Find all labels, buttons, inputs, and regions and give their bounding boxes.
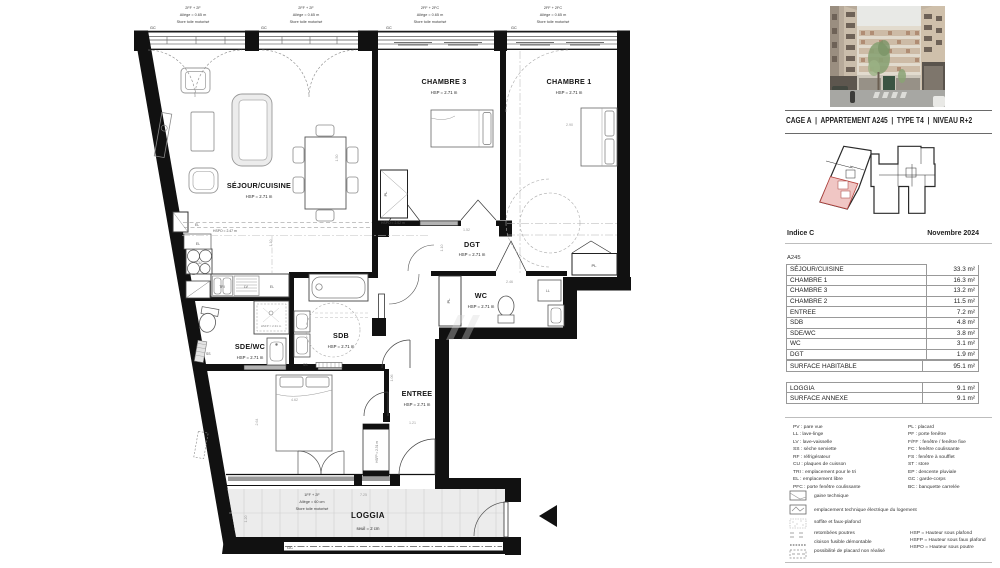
svg-text:2.46: 2.46 (506, 280, 513, 284)
svg-text:HSPO = 2.02 m: HSPO = 2.02 m (381, 221, 405, 225)
svg-text:HSP = 2.71 m: HSP = 2.71 m (556, 90, 583, 95)
svg-text:2.90: 2.90 (566, 123, 573, 127)
svg-text:HSP = 2.71 m: HSP = 2.71 m (404, 402, 431, 407)
svg-text:1FF + 2F: 1FF + 2F (304, 493, 320, 497)
svg-text:HSFP = 2.31 m: HSFP = 2.31 m (261, 324, 282, 328)
svg-text:PL: PL (446, 298, 451, 304)
svg-text:Allège = 0.65 m: Allège = 0.65 m (417, 13, 444, 17)
svg-text:Store toile motorisé: Store toile motorisé (290, 20, 323, 24)
svg-text:4.62: 4.62 (291, 398, 298, 402)
svg-text:Store toile motorisé: Store toile motorisé (537, 20, 570, 24)
svg-text:1.52: 1.52 (463, 228, 470, 232)
svg-text:GC: GC (150, 26, 156, 30)
svg-text:LOGGIA: LOGGIA (351, 511, 385, 520)
svg-text:Allège = 0.65 m: Allège = 0.65 m (180, 13, 207, 17)
svg-text:2FF + 2FC: 2FF + 2FC (544, 6, 563, 10)
svg-text:Store toile motorisé: Store toile motorisé (296, 507, 329, 511)
svg-text:1.10: 1.10 (440, 245, 444, 252)
svg-text:Allège = 0.65 m: Allège = 0.65 m (293, 13, 320, 17)
svg-text:DGT: DGT (464, 240, 480, 249)
svg-text:GC: GC (287, 545, 293, 550)
svg-text:1.50: 1.50 (335, 155, 339, 162)
svg-text:SS: SS (303, 363, 308, 367)
svg-text:CHAMBRE 1: CHAMBRE 1 (547, 77, 592, 86)
svg-text:2FF + 2F: 2FF + 2F (298, 6, 314, 10)
svg-text:SS: SS (206, 352, 211, 356)
svg-text:HSP = 2.71 m: HSP = 2.71 m (431, 90, 458, 95)
svg-text:seuil = 2 cm: seuil = 2 cm (356, 526, 379, 531)
svg-text:SDE/WC: SDE/WC (235, 342, 265, 351)
svg-text:EL: EL (270, 285, 274, 289)
svg-text:SDB: SDB (333, 331, 349, 340)
svg-text:HSP = 2.71 m: HSP = 2.71 m (246, 194, 273, 199)
svg-text:HSP = 2.71 m: HSP = 2.71 m (468, 304, 495, 309)
svg-text:Allège = 60 cm: Allège = 60 cm (299, 500, 324, 504)
svg-text:HSP = 2.71 m: HSP = 2.71 m (459, 252, 486, 257)
svg-text:GC: GC (511, 26, 517, 30)
svg-text:PL: PL (592, 263, 598, 268)
svg-text:EL: EL (195, 223, 199, 227)
svg-text:GC: GC (386, 26, 392, 30)
svg-text:1.10: 1.10 (269, 240, 273, 247)
svg-text:HSP = 2.71 m: HSP = 2.71 m (328, 344, 355, 349)
svg-text:Store toile motorisé: Store toile motorisé (177, 20, 210, 24)
svg-text:1.06: 1.06 (390, 375, 394, 382)
svg-text:2FF + 2F: 2FF + 2F (185, 6, 201, 10)
svg-text:7.25: 7.25 (360, 493, 367, 497)
svg-text:GC: GC (261, 26, 267, 30)
svg-text:WC: WC (475, 291, 487, 300)
svg-text:HSPO = 2.47 m: HSPO = 2.47 m (213, 229, 237, 233)
svg-text:CHAMBRE 3: CHAMBRE 3 (422, 77, 467, 86)
svg-text:1.21: 1.21 (409, 421, 416, 425)
svg-text:Store toile motorisé: Store toile motorisé (414, 20, 447, 24)
svg-text:HSFP = 2.31 m: HSFP = 2.31 m (375, 441, 379, 463)
svg-text:LL: LL (546, 289, 550, 293)
svg-text:ENTREE: ENTREE (402, 389, 433, 398)
svg-text:TRI: TRI (219, 285, 225, 289)
svg-text:CU: CU (197, 261, 202, 265)
svg-text:EL: EL (196, 242, 200, 246)
svg-text:SÉJOUR/CUISINE: SÉJOUR/CUISINE (227, 181, 291, 190)
svg-text:Allège = 0.65 m: Allège = 0.65 m (540, 13, 567, 17)
svg-text:2.64: 2.64 (255, 419, 259, 426)
svg-text:PL: PL (384, 192, 388, 197)
svg-text:1.20: 1.20 (244, 516, 248, 523)
svg-text:HSP = 2.71 m: HSP = 2.71 m (237, 355, 264, 360)
svg-text:2FF + 2FC: 2FF + 2FC (421, 6, 440, 10)
